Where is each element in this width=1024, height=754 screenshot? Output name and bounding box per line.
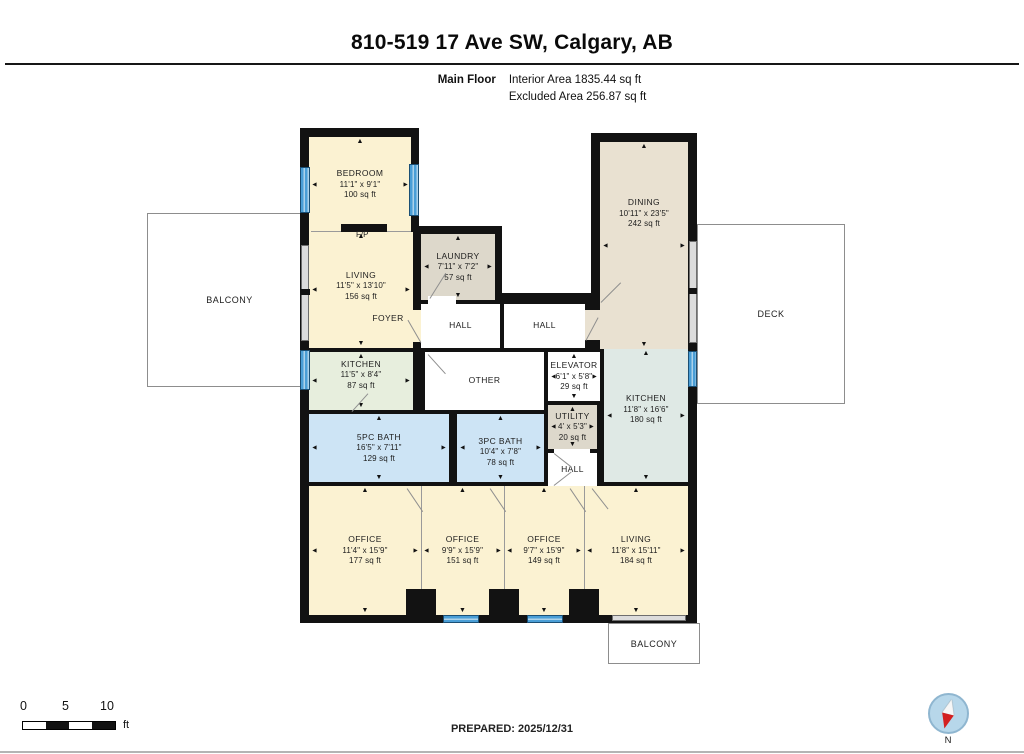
balcony-left-label: BALCONY (206, 295, 253, 305)
room-name: UTILITY (555, 411, 589, 422)
compass-circle (928, 693, 969, 734)
room-bath5: ▲▼◄►5PC BATH16'5" x 7'11"129 sq ft (309, 414, 449, 482)
dimension-arrow: ◄ (423, 264, 430, 271)
dimension-arrow: ► (486, 264, 493, 271)
north-label: N (924, 735, 972, 746)
compass-needle-red (939, 712, 954, 729)
dimension-arrow: ▼ (376, 474, 383, 481)
wall-stub (489, 589, 519, 616)
room-name: HALL (449, 320, 472, 331)
dimension-arrow: ▲ (357, 138, 364, 145)
room-area: 100 sq ft (337, 190, 384, 201)
room-name: KITCHEN (623, 393, 668, 404)
dimension-arrow: ▲ (641, 143, 648, 150)
room-area: 151 sq ft (442, 556, 483, 567)
dimension-arrow: ► (402, 181, 409, 188)
room-name: ELEVATOR (550, 360, 597, 371)
room-dimensions: 6'1" x 5'8" (550, 372, 597, 383)
room-area: 242 sq ft (619, 219, 669, 230)
room-dimensions: 10'11" x 23'5" (619, 209, 669, 220)
wall-stub (406, 589, 436, 616)
room-bath3: ▲▼◄►3PC BATH10'4" x 7'8"78 sq ft (457, 414, 544, 482)
room-dimensions: 16'5" x 7'11" (356, 443, 401, 454)
room-dimensions: 9'7" x 15'9" (523, 546, 564, 557)
room-area: 20 sq ft (555, 433, 589, 444)
room-area: 177 sq ft (342, 556, 387, 567)
bedroom-living-partition (311, 231, 343, 232)
room-name: HALL (533, 320, 556, 331)
dimension-arrow: ▼ (362, 607, 369, 614)
room-elevator: ▲▼◄►ELEVATOR6'1" x 5'8"29 sq ft (548, 352, 600, 401)
compass: N (924, 693, 972, 746)
room-dimensions: 11'1" x 9'1" (337, 180, 384, 191)
window-office-bottom (527, 615, 563, 623)
dimension-arrow: ► (412, 547, 419, 554)
dimension-arrow: ▲ (376, 415, 383, 422)
room-hall2: HALL (504, 304, 585, 348)
excluded-area: Excluded Area 256.87 sq ft (509, 89, 646, 106)
window-bedroom-right (409, 164, 419, 216)
prepared-date: PREPARED: 2025/12/31 (0, 723, 1024, 735)
dimension-arrow: ◄ (311, 181, 318, 188)
dimension-arrow: ◄ (311, 287, 318, 294)
dimension-arrow: ► (495, 547, 502, 554)
dimension-arrow: ► (679, 412, 686, 419)
dimension-arrow: ► (679, 547, 686, 554)
header-divider (5, 63, 1019, 65)
room-area: 156 sq ft (336, 292, 386, 303)
room-area: 129 sq ft (356, 454, 401, 465)
room-other: OTHER (425, 352, 544, 410)
dimension-arrow: ► (575, 547, 582, 554)
room-name: 5PC BATH (356, 432, 401, 443)
room-living_right: ▲▼◄►LIVING11'8" x 15'11"184 sq ft (584, 486, 688, 615)
room-dining: ▲▼◄►DINING10'11" x 23'5"242 sq ft (600, 142, 688, 349)
room-area: 29 sq ft (550, 382, 597, 393)
room-area: 78 sq ft (478, 458, 522, 469)
room-area: 87 sq ft (341, 381, 382, 392)
room-bedroom: ▲▼◄►BEDROOM11'1" x 9'1"100 sq ft (309, 137, 411, 232)
room-dimensions: 11'4" x 15'9" (342, 546, 387, 557)
deck-label: DECK (757, 309, 784, 319)
dimension-arrow: ▲ (497, 415, 504, 422)
sliding-door-mullion (300, 289, 310, 295)
bottom-divider (0, 751, 1024, 753)
dimension-arrow: ◄ (311, 445, 318, 452)
room-dimensions: 10'4" x 7'8" (478, 447, 522, 458)
doorway-gap (428, 296, 456, 304)
balcony-left-box: BALCONY (147, 213, 312, 387)
room-hall1: HALL (421, 304, 500, 348)
room-name: 3PC BATH (478, 436, 522, 447)
room-dimensions: 9'9" x 15'9" (442, 546, 483, 557)
floorplan-page: 810-519 17 Ave SW, Calgary, AB Main Floo… (0, 0, 1024, 754)
dimension-arrow: ► (679, 242, 686, 249)
dimension-arrow: ▲ (571, 353, 578, 360)
dimension-arrow: ▼ (633, 607, 640, 614)
room-dimensions: 11'8" x 15'11" (611, 546, 660, 557)
dimension-arrow: ▲ (459, 487, 466, 494)
dimension-arrow: ◄ (606, 412, 613, 419)
floor-summary: Main Floor Interior Area 1835.44 sq ft E… (30, 72, 1024, 106)
scale-tick: 10 (100, 699, 114, 713)
floor-label: Main Floor (438, 72, 496, 106)
dimension-arrow: ▼ (641, 341, 648, 348)
window-kitchen-left (300, 350, 310, 390)
dimension-arrow: ▲ (362, 487, 369, 494)
room-dimensions: 4' x 5'3" (555, 422, 589, 433)
sliding-door-living-right (612, 615, 686, 621)
dimension-arrow: ▼ (459, 607, 466, 614)
dimension-arrow: ◄ (311, 378, 318, 385)
dimension-arrow: ▼ (358, 340, 365, 347)
deck-box: DECK (697, 224, 845, 404)
dimension-arrow: ▼ (643, 474, 650, 481)
room-dimensions: 11'8" x 16'6" (623, 405, 668, 416)
dimension-arrow: ► (404, 378, 411, 385)
room-area: 180 sq ft (623, 415, 668, 426)
dimension-arrow: ▼ (571, 393, 578, 400)
dimension-arrow: ◄ (423, 547, 430, 554)
room-area: 149 sq ft (523, 556, 564, 567)
dimension-arrow: ► (535, 445, 542, 452)
room-name: OTHER (469, 375, 501, 386)
room-dimensions: 7'11" x 7'2" (436, 262, 479, 273)
dimension-arrow: ► (440, 445, 447, 452)
room-dimensions: 11'5" x 13'10" (336, 281, 386, 292)
room-utility: ▲▼◄►UTILITY4' x 5'3"20 sq ft (548, 405, 597, 449)
balcony-bottom-label: BALCONY (631, 639, 678, 649)
room-name: BEDROOM (337, 168, 384, 179)
dimension-arrow: ▼ (541, 607, 548, 614)
dimension-arrow: ► (404, 287, 411, 294)
room-name: OFFICE (523, 534, 564, 545)
bedroom-living-partition (387, 231, 411, 232)
room-name: LIVING (336, 270, 386, 281)
dimension-arrow: ▲ (455, 235, 462, 242)
area-summary: Interior Area 1835.44 sq ft Excluded Are… (509, 72, 646, 106)
window-kitchen-right (688, 351, 697, 387)
room-name: LAUNDRY (436, 251, 479, 262)
dimension-arrow: ▼ (497, 474, 504, 481)
doorway-gap (554, 449, 590, 453)
page-title: 810-519 17 Ave SW, Calgary, AB (0, 31, 1024, 55)
dimension-arrow: ◄ (586, 547, 593, 554)
room-name: DINING (619, 197, 669, 208)
scale-tick: 5 (62, 699, 69, 713)
compass-needle-icon (938, 697, 959, 729)
window-bedroom-left (300, 167, 310, 213)
interior-area: Interior Area 1835.44 sq ft (509, 72, 646, 89)
room-name: KITCHEN (341, 359, 382, 370)
room-name: OFFICE (442, 534, 483, 545)
dimension-arrow: ◄ (311, 547, 318, 554)
dimension-arrow: ◄ (459, 445, 466, 452)
dimension-arrow: ▲ (541, 487, 548, 494)
balcony-bottom-box: BALCONY (608, 623, 700, 664)
room-office1: ▲▼◄►OFFICE11'4" x 15'9"177 sq ft (309, 486, 421, 615)
room-name: HALL (561, 464, 584, 475)
wall-stub (569, 589, 599, 616)
room-name: FOYER (372, 313, 403, 324)
scale-tick: 0 (20, 699, 27, 713)
sliding-door-mullion (688, 288, 697, 294)
room-area: 184 sq ft (611, 556, 660, 567)
doorway-gap (554, 482, 590, 486)
dimension-arrow: ◄ (506, 547, 513, 554)
room-kitchen_right: ▲▼◄►KITCHEN11'8" x 16'6"180 sq ft (604, 349, 688, 482)
dimension-arrow: ▲ (633, 487, 640, 494)
dimension-arrow: ◄ (602, 242, 609, 249)
room-name: LIVING (611, 534, 660, 545)
room-laundry: ▲▼◄►LAUNDRY7'11" x 7'2"57 sq ft (421, 234, 495, 300)
fireplace-label: F/P (356, 230, 368, 239)
room-dimensions: 11'5" x 8'4" (341, 370, 382, 381)
room-name: OFFICE (342, 534, 387, 545)
window-office-bottom (443, 615, 479, 623)
dimension-arrow: ▲ (643, 350, 650, 357)
